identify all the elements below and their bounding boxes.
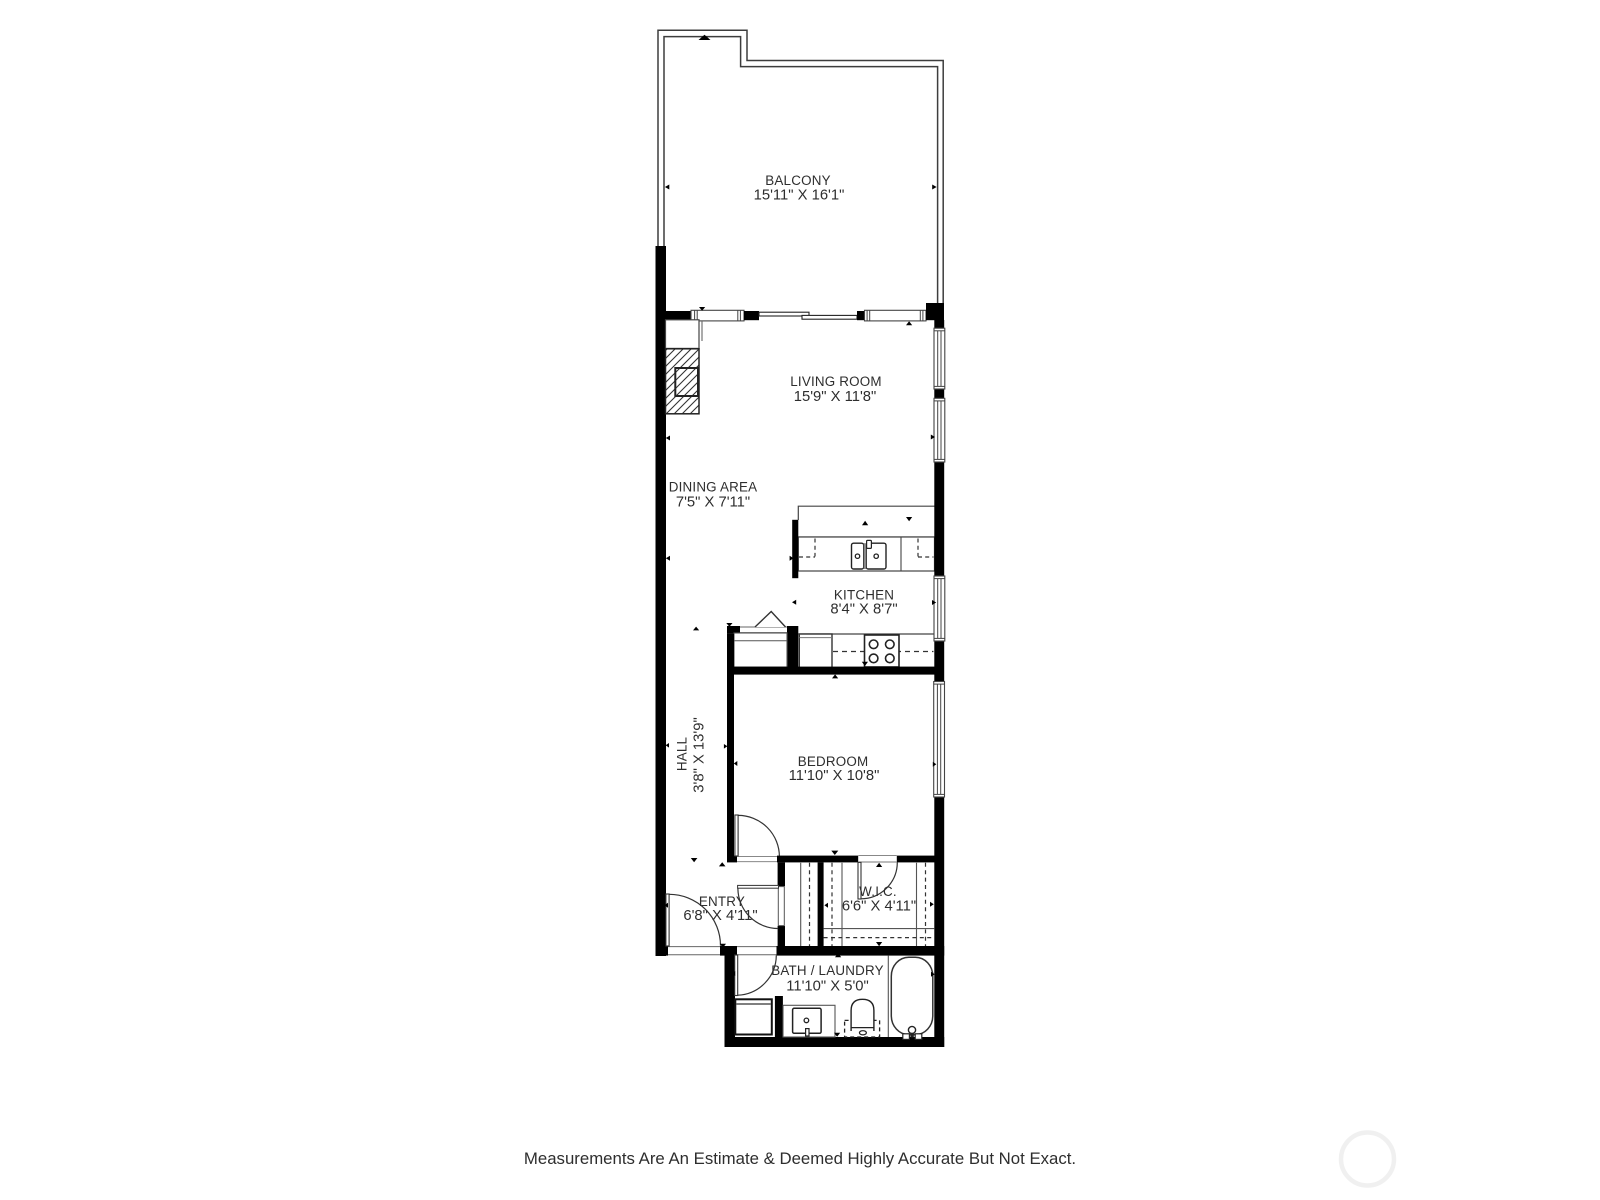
svg-text:6'6" X 4'11": 6'6" X 4'11" <box>842 899 916 915</box>
svg-text:BALCONY: BALCONY <box>765 173 830 188</box>
svg-text:11'10" X 5'0": 11'10" X 5'0" <box>786 979 869 995</box>
svg-text:15'9" X 11'8": 15'9" X 11'8" <box>794 389 877 405</box>
svg-text:8'4" X 8'7": 8'4" X 8'7" <box>830 602 897 618</box>
svg-text:KITCHEN: KITCHEN <box>834 588 894 603</box>
svg-text:3'8" X 13'9": 3'8" X 13'9" <box>692 717 708 792</box>
svg-text:LIVING ROOM: LIVING ROOM <box>790 374 881 389</box>
svg-text:W.I.C.: W.I.C. <box>859 884 897 899</box>
svg-text:Measurements Are An Estimate &: Measurements Are An Estimate & Deemed Hi… <box>524 1149 1076 1168</box>
svg-text:ENTRY: ENTRY <box>699 894 745 909</box>
svg-text:15'11" X 16'1": 15'11" X 16'1" <box>754 188 845 204</box>
svg-text:11'10" X 10'8": 11'10" X 10'8" <box>789 768 880 784</box>
svg-text:BATH / LAUNDRY: BATH / LAUNDRY <box>771 963 883 978</box>
svg-text:BEDROOM: BEDROOM <box>798 754 869 769</box>
svg-text:6'8" X 4'11": 6'8" X 4'11" <box>683 908 757 924</box>
svg-text:DINING AREA: DINING AREA <box>669 480 758 495</box>
svg-text:HALL: HALL <box>675 737 690 771</box>
svg-text:7'5" X 7'11": 7'5" X 7'11" <box>676 495 750 511</box>
